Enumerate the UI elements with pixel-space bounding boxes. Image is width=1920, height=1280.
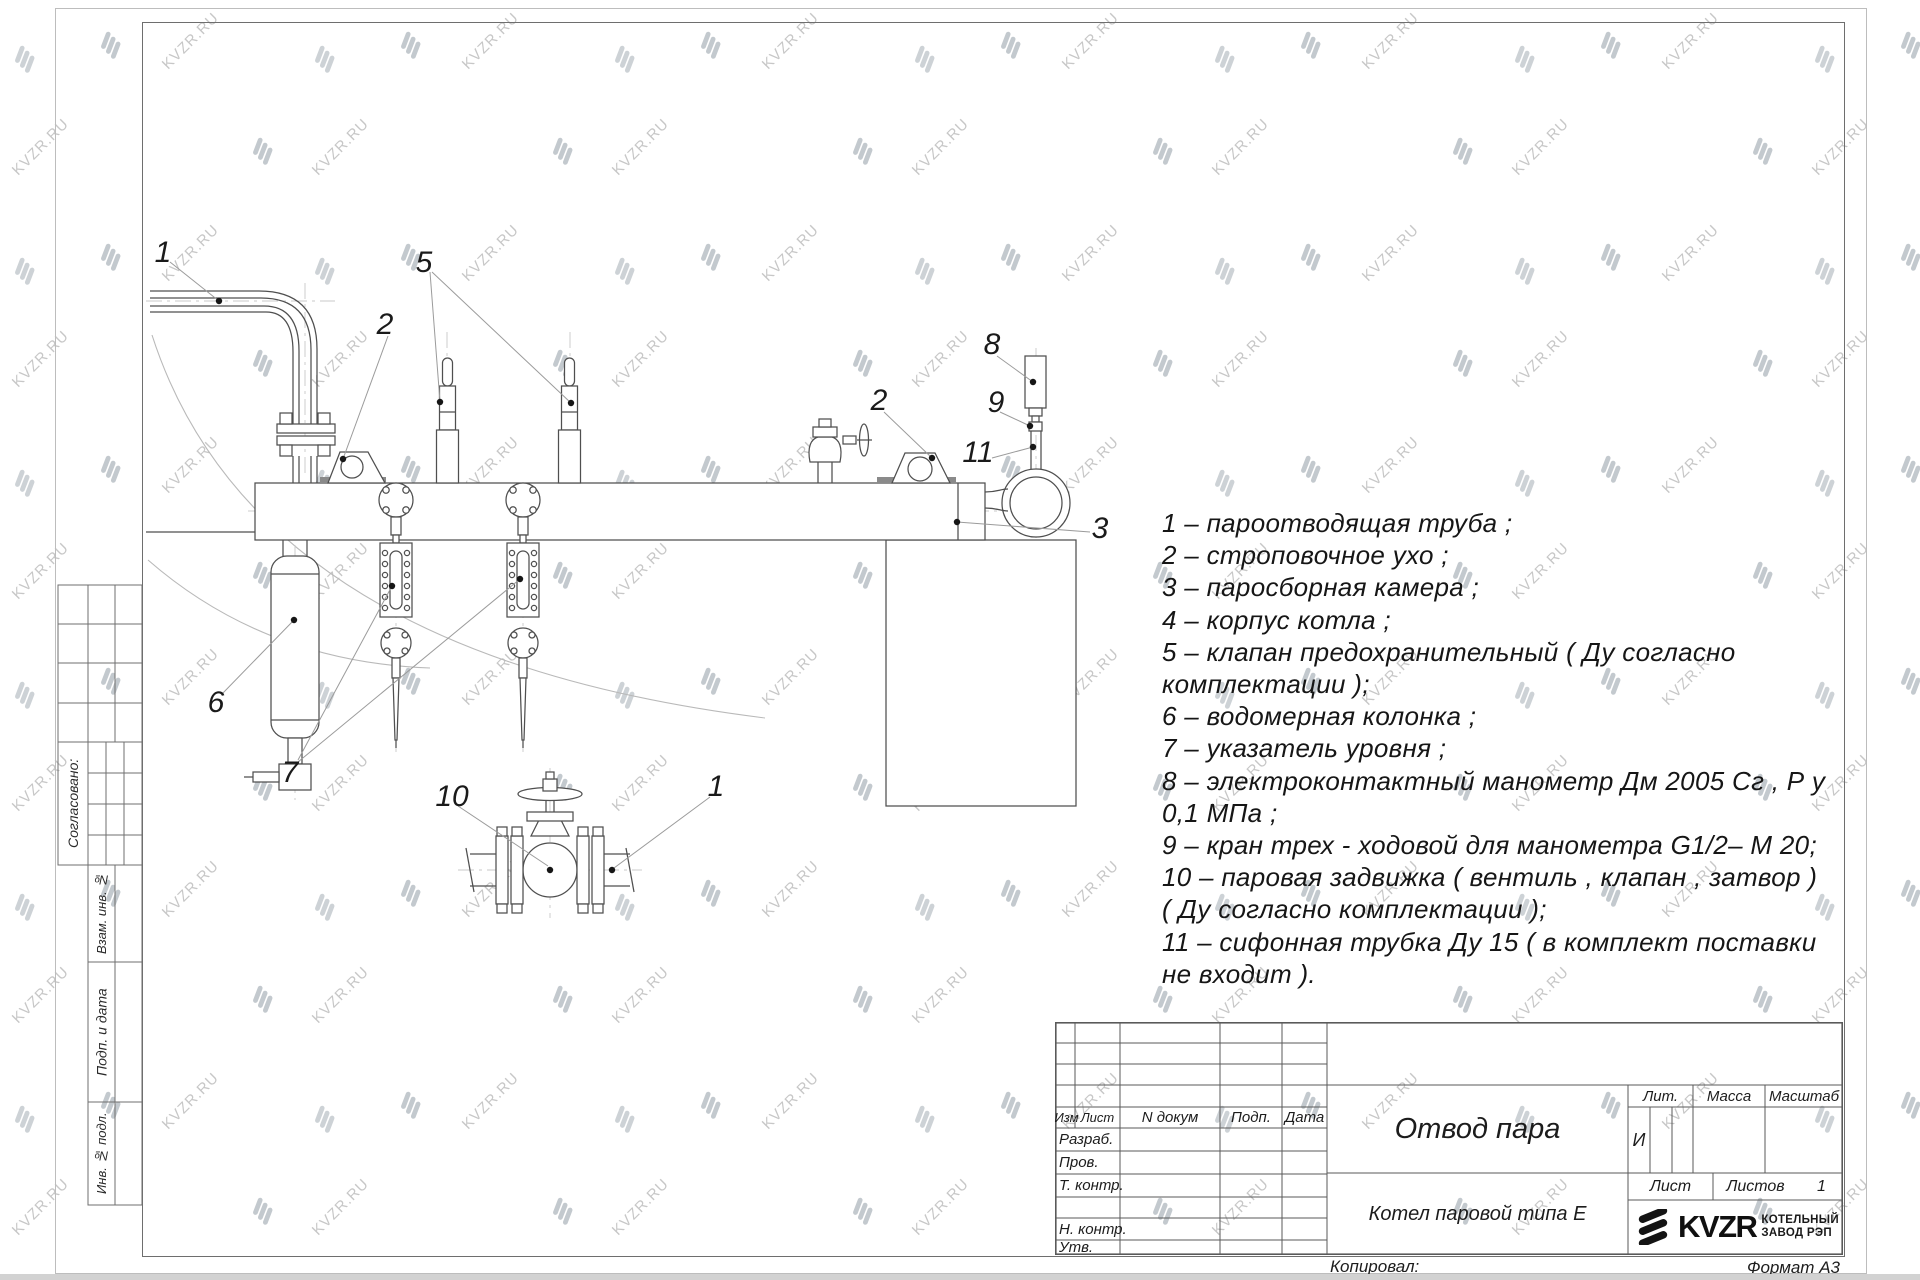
legend-line: 8 – электроконтактный манометр Дм 2005 С… (1162, 765, 1857, 797)
legend-line: не входит ). (1162, 958, 1857, 990)
row-nkontr: Н. контр. (1055, 1218, 1124, 1240)
title-block: Изм Лист N докум Подп. Дата Разраб. Пров… (1055, 1022, 1843, 1255)
lifting-ear-left (320, 452, 386, 483)
callout-8-gauge: 8 (984, 328, 1001, 361)
sheets-label: Листов (1713, 1173, 1798, 1200)
steam-outlet-pipe (150, 291, 335, 483)
callout-10-valve: 10 (435, 780, 469, 813)
col-ndoc: N докум (1120, 1107, 1220, 1128)
steam-gate-valve (466, 772, 634, 913)
col-data: Дата (1282, 1107, 1327, 1128)
logo-sub-1: КОТЕЛЬНЫЙ (1761, 1214, 1839, 1228)
callout-2-ear-right: 2 (870, 384, 888, 417)
legend-line: 4 – корпус котла ; (1162, 604, 1857, 636)
row-utv: Утв. (1055, 1240, 1124, 1255)
callout-1-pipe-bottom: 1 (708, 770, 725, 803)
lit-value: И (1628, 1107, 1650, 1173)
row-tkontr: Т. контр. (1055, 1174, 1124, 1197)
legend-line: 6 – водомерная колонка ; (1162, 700, 1857, 732)
callout-1-pipe: 1 (155, 236, 172, 269)
legend-line: 9 – кран трех - ходовой для манометра G1… (1162, 829, 1857, 861)
lifting-ear-right (877, 453, 956, 483)
drawing-sheet: KVZR.RU KVZR.RU (0, 0, 1920, 1280)
scale-label: Масштаб (1765, 1085, 1843, 1107)
drawing-title: Отвод пара (1327, 1085, 1628, 1173)
legend-line: ( Ду согласно комплектации ); (1162, 893, 1857, 925)
legend-line: 3 – паросборная камера ; (1162, 571, 1857, 603)
legend-line: 10 – паровая задвижка ( вентиль , клапан… (1162, 861, 1857, 893)
safety-valve-right (559, 358, 581, 483)
legend-line: 7 – указатель уровня ; (1162, 732, 1857, 764)
callout-6-column: 6 (208, 686, 225, 719)
kvzr-logo-icon (1633, 1209, 1673, 1245)
callout-3-chamber: 3 (1092, 512, 1109, 545)
scan-edge (0, 1274, 1920, 1280)
callout-5-safety-valve: 5 (416, 246, 433, 279)
callout-9-cock: 9 (988, 386, 1005, 419)
legend-line: 11 – сифонная трубка Ду 15 ( в комплект … (1162, 926, 1857, 958)
water-column (244, 540, 319, 790)
parts-legend: 1 – пароотводящая труба ; 2 – строповочн… (1162, 507, 1857, 990)
lit-label: Лит. (1628, 1085, 1693, 1107)
legend-line: 2 – строповочное ухо ; (1162, 539, 1857, 571)
legend-line: 1 – пароотводящая труба ; (1162, 507, 1857, 539)
siphon-tube (985, 431, 1070, 537)
legend-line: 5 – клапан предохранительный ( Ду соглас… (1162, 636, 1857, 668)
steam-manifold (255, 483, 985, 540)
sheet-label: Лист (1628, 1173, 1713, 1200)
legend-line: комплектации ); (1162, 668, 1857, 700)
company-logo: KVZR КОТЕЛЬНЫЙ ЗАВОД РЭП (1633, 1202, 1839, 1252)
callout-7-level: 7 (282, 756, 300, 789)
safety-valve-left (437, 358, 459, 483)
callout-11-siphon: 11 (962, 436, 993, 469)
product-name: Котел паровой типа Е (1327, 1173, 1628, 1255)
callout-2-ear-left: 2 (376, 308, 394, 341)
row-razrab: Разраб. (1055, 1128, 1124, 1151)
logo-sub-2: ЗАВОД РЭП (1761, 1227, 1839, 1241)
row-prov: Пров. (1055, 1151, 1124, 1174)
legend-line: 0,1 МПа ; (1162, 797, 1857, 829)
steam-valve-top (809, 419, 872, 483)
sheets-count: 1 (1800, 1173, 1843, 1200)
col-podp: Подп. (1220, 1107, 1282, 1128)
steam-chamber (886, 540, 1076, 806)
mass-label: Масса (1693, 1085, 1765, 1107)
logo-name: KVZR (1678, 1209, 1756, 1245)
col-list: Лист (1075, 1107, 1120, 1128)
